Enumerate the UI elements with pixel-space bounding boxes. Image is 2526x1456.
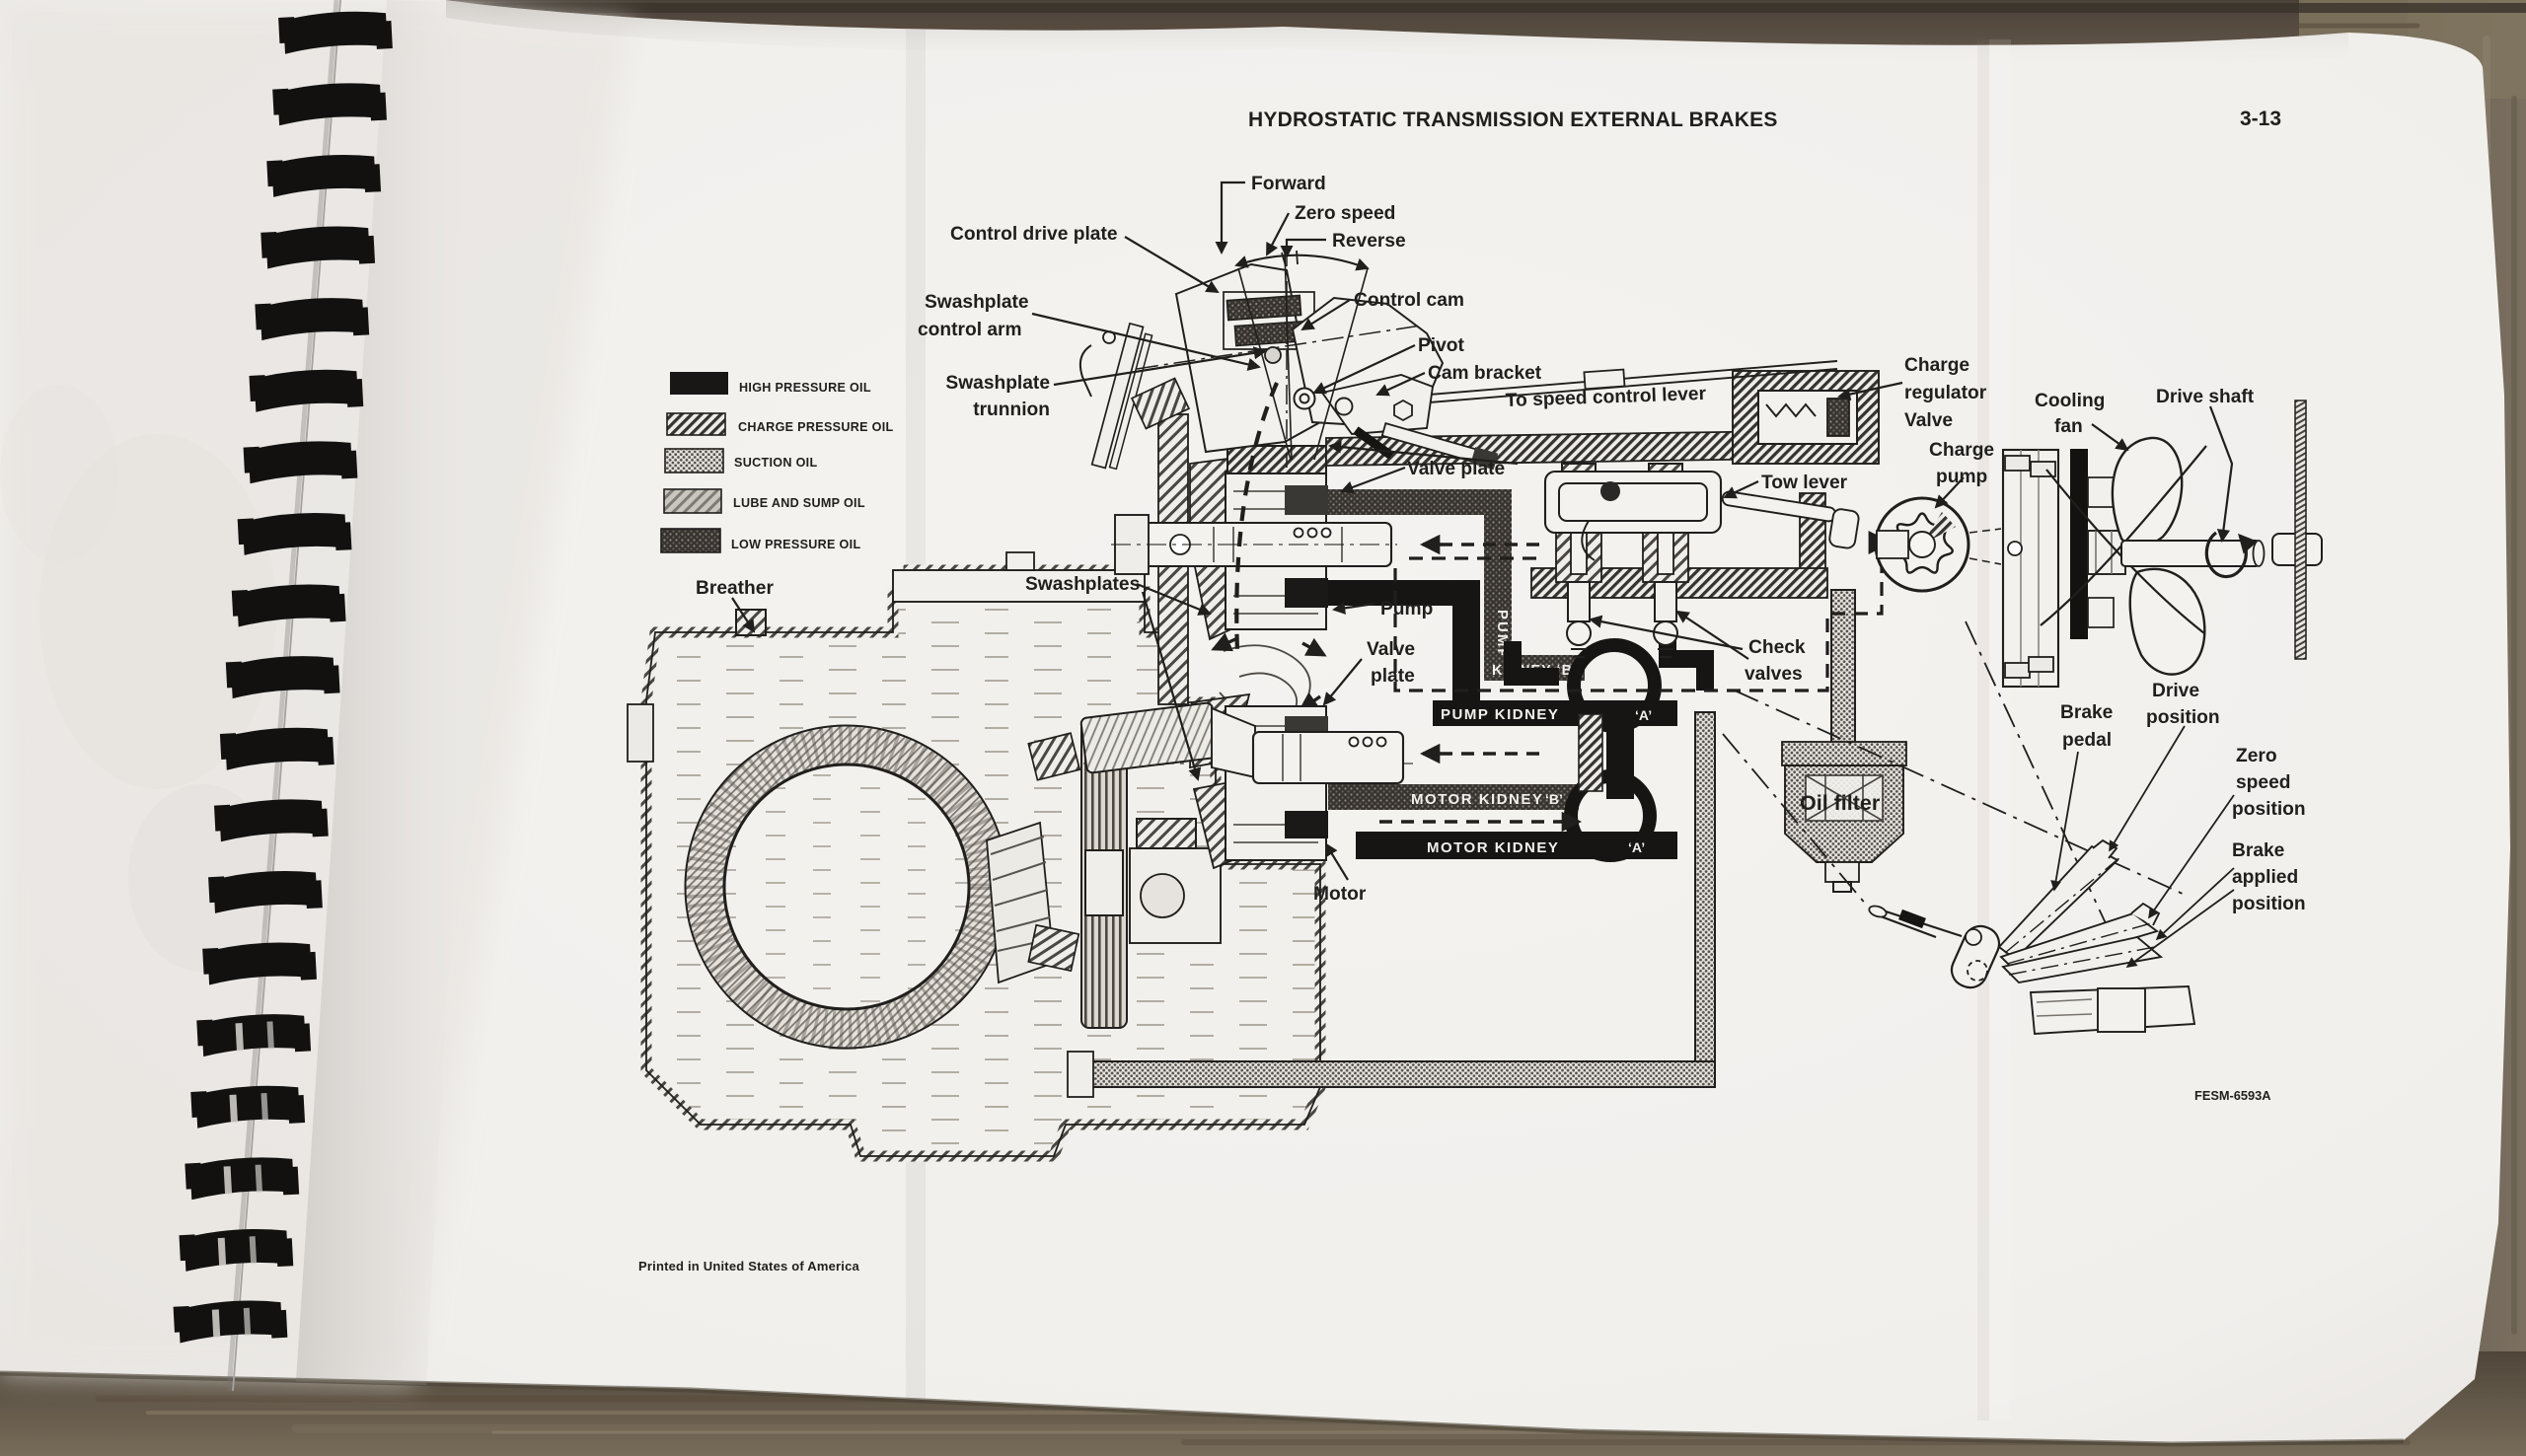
svg-text:Printed in United States of Am: Printed in United States of America xyxy=(638,1259,860,1274)
svg-text:Oil filter: Oil filter xyxy=(1800,791,1881,815)
svg-text:Forward: Forward xyxy=(1251,174,1326,194)
svg-text:applied: applied xyxy=(2232,867,2298,888)
svg-text:SUCTION OIL: SUCTION OIL xyxy=(734,456,817,470)
svg-text:Cam bracket: Cam bracket xyxy=(1428,363,1542,384)
svg-text:Tow lever: Tow lever xyxy=(1761,473,1848,493)
svg-text:Zero: Zero xyxy=(2236,746,2277,766)
svg-text:‘A’: ‘A’ xyxy=(1635,707,1652,723)
svg-text:Pivot: Pivot xyxy=(1418,335,1465,356)
svg-text:position: position xyxy=(2232,799,2306,820)
svg-text:Valve plate: Valve plate xyxy=(1407,459,1506,479)
svg-text:valves: valves xyxy=(1745,664,1803,685)
svg-text:MOTOR KIDNEY: MOTOR KIDNEY xyxy=(1411,791,1543,808)
svg-text:LOW PRESSURE OIL: LOW PRESSURE OIL xyxy=(731,538,860,551)
svg-text:pedal: pedal xyxy=(2062,730,2112,751)
svg-text:Cooling: Cooling xyxy=(2035,391,2105,411)
svg-text:Reverse: Reverse xyxy=(1332,231,1406,252)
svg-text:Charge: Charge xyxy=(1904,355,1969,376)
svg-text:Check: Check xyxy=(1748,637,1806,658)
svg-text:FESM-6593A: FESM-6593A xyxy=(2194,1088,2271,1103)
svg-text:pump: pump xyxy=(1936,467,1987,487)
svg-text:control arm: control arm xyxy=(918,320,1022,340)
svg-text:position: position xyxy=(2232,894,2306,914)
svg-text:Pump: Pump xyxy=(1380,599,1433,619)
svg-text:plate: plate xyxy=(1371,666,1415,687)
svg-text:speed: speed xyxy=(2236,772,2290,793)
svg-text:Breather: Breather xyxy=(696,578,774,599)
svg-text:Valve: Valve xyxy=(1904,410,1953,431)
svg-text:CHARGE PRESSURE OIL: CHARGE PRESSURE OIL xyxy=(738,420,894,434)
svg-text:Control drive plate: Control drive plate xyxy=(950,224,1118,245)
svg-text:HIGH PRESSURE OIL: HIGH PRESSURE OIL xyxy=(739,381,871,395)
svg-text:Swashplate: Swashplate xyxy=(945,373,1050,394)
svg-text:MOTOR KIDNEY: MOTOR KIDNEY xyxy=(1427,839,1559,856)
svg-text:HYDROSTATIC TRANSMISSION EXTER: HYDROSTATIC TRANSMISSION EXTERNAL BRAKES xyxy=(1248,109,1778,131)
svg-text:fan: fan xyxy=(2054,416,2083,437)
svg-text:Charge: Charge xyxy=(1929,440,1994,461)
svg-text:‘A’: ‘A’ xyxy=(1628,839,1645,855)
svg-text:Zero speed: Zero speed xyxy=(1295,203,1395,224)
svg-text:Swashplate: Swashplate xyxy=(925,292,1029,313)
svg-text:Brake: Brake xyxy=(2060,702,2114,723)
svg-text:PUMP KIDNEY: PUMP KIDNEY xyxy=(1441,706,1559,723)
svg-text:Motor: Motor xyxy=(1313,884,1367,905)
svg-text:regulator: regulator xyxy=(1904,383,1987,403)
svg-text:Drive: Drive xyxy=(2152,681,2199,701)
svg-text:Brake: Brake xyxy=(2232,840,2285,861)
svg-text:Drive shaft: Drive shaft xyxy=(2156,387,2255,407)
svg-text:‘B’: ‘B’ xyxy=(1545,791,1563,807)
svg-text:3-13: 3-13 xyxy=(2240,108,2281,130)
svg-text:Valve: Valve xyxy=(1367,639,1415,660)
svg-text:LUBE AND SUMP OIL: LUBE AND SUMP OIL xyxy=(733,496,865,510)
svg-text:trunnion: trunnion xyxy=(973,400,1050,420)
svg-text:Control cam: Control cam xyxy=(1354,290,1464,311)
svg-text:position: position xyxy=(2146,707,2220,728)
svg-text:Swashplates: Swashplates xyxy=(1025,574,1140,595)
